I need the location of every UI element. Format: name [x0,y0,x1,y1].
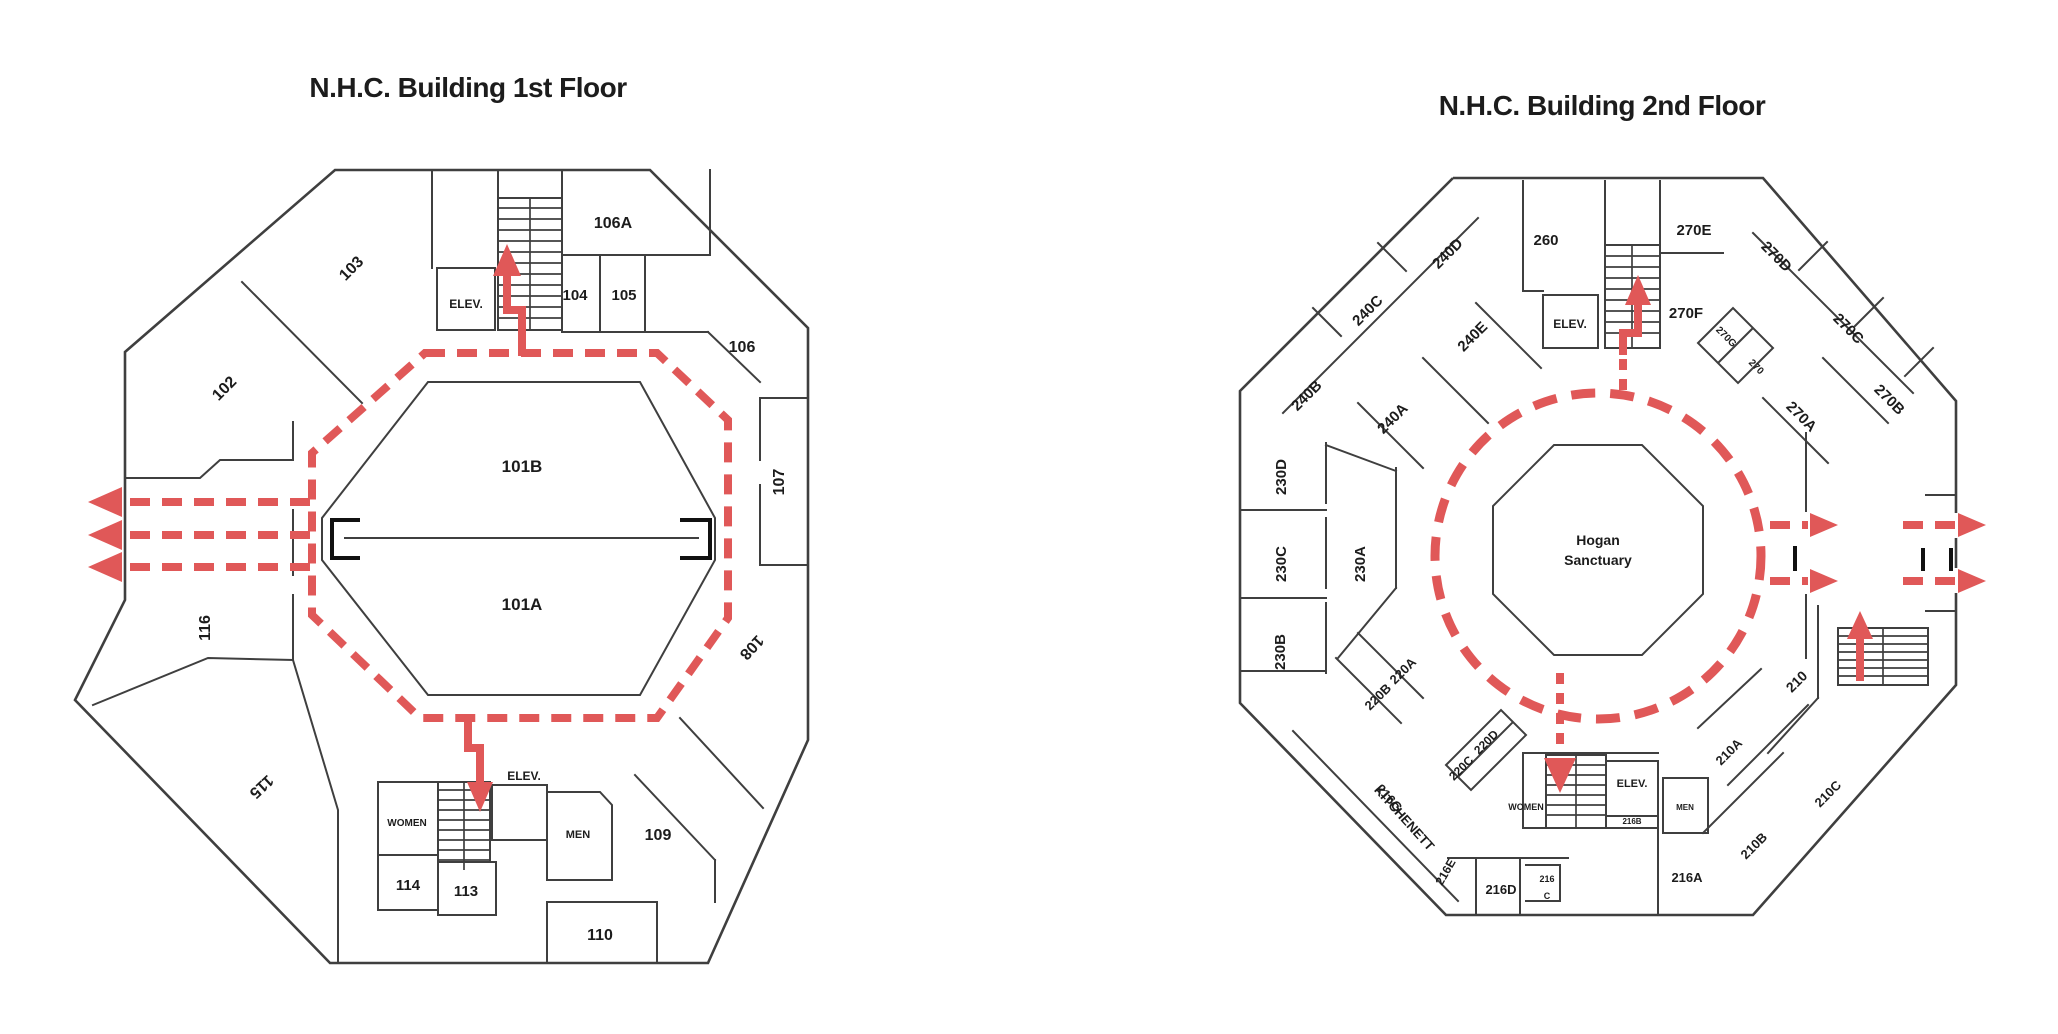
room-label-105: 105 [611,287,636,304]
room-label-216a: 216A [1671,870,1703,885]
evacuation-map-page: N.H.C. Building 1st Floor N.H.C. Buildin… [0,0,2058,1034]
room-label-110: 110 [587,927,613,944]
room-label-230b: 230B [1272,634,1289,670]
room-label-116: 116 [197,615,214,641]
evacuation-route-floor1 [88,244,728,812]
exit-arrow-right-3 [1958,513,1986,537]
floor1-plan: 101B 101A 103 102 116 115 106A ELEV. 104… [60,120,850,1000]
room-label-240e: 240E [1454,318,1491,355]
route-to-bottom-stairs [468,721,480,784]
elevator-label-bottom-2: ELEV. [1617,778,1648,790]
room-label-106: 106 [729,339,756,356]
building-outline [75,170,808,963]
room-label-114: 114 [396,877,421,894]
room-label-210c: 210C [1812,777,1845,810]
exit-arrow-left-1 [88,487,122,517]
room-label-270: 270 [1746,357,1766,377]
men-label: MEN [566,829,591,841]
room-label-210a: 210A [1713,735,1746,768]
room-label-103: 103 [336,253,367,284]
route-exit-lines-left [120,502,310,567]
room-label-220a: 220A [1387,654,1420,687]
room-label-270f: 270F [1669,305,1703,322]
room-label-106a: 106A [594,215,633,232]
room-label-220d: 220D [1471,727,1501,757]
room-label-102: 102 [209,373,240,404]
route-exit-outer [1903,525,1956,581]
room-label-216c-line1: 216 [1539,874,1554,884]
room-label-240b: 240B [1288,377,1325,414]
women-label-2: WOMEN [1508,802,1544,812]
room-label-216e: 216E [1432,856,1458,887]
room-label-260: 260 [1533,232,1558,249]
room-label-240d: 240D [1429,235,1466,272]
room-label-270a: 270A [1782,398,1819,435]
room-label-108: 108 [736,632,767,663]
room-label-220b: 220B [1362,681,1395,714]
exit-arrow-right-4 [1958,569,1986,593]
elevator-label-bottom: ELEV. [507,769,541,783]
room-label-109: 109 [645,827,672,844]
route-loop [312,353,728,718]
route-exit-inner [1770,525,1808,581]
room-label-113: 113 [454,883,478,900]
room-label-220c: 220C [1446,753,1476,783]
room-label-101a: 101A [502,595,543,614]
room-label-101b: 101B [502,457,543,476]
room-label-115: 115 [246,771,277,801]
room-label-230c: 230C [1273,546,1290,582]
kitchenett-label: KITCHENETT [1371,782,1437,853]
room-label-210: 210 [1783,667,1811,695]
room-label-216d: 216D [1485,882,1516,897]
up-arrow-right-stairs [1847,611,1873,639]
room-label-216b: 216B [1622,817,1641,826]
room-label-270b: 270B [1870,381,1907,418]
floor1-title: N.H.C. Building 1st Floor [218,72,718,104]
elevator-box-bottom [492,785,547,840]
room-label-216c-line2: C [1544,891,1551,901]
room-label-107: 107 [771,469,788,496]
room-label-230d: 230D [1273,459,1290,495]
door-markers-right-exit [1795,546,1951,571]
exit-arrow-left-3 [88,552,122,582]
floor1-outer-walls [75,170,808,963]
room-label-230a: 230A [1352,546,1369,582]
room-label-270e: 270E [1676,222,1711,239]
exit-arrow-right-2 [1810,569,1838,593]
room-label-210b: 210B [1738,830,1771,863]
floor2-labels: Hogan Sanctuary 260 ELEV. 270E 270F 270D… [1272,222,1908,901]
room-label-240c: 240C [1349,292,1386,329]
sanctuary-outline [1493,445,1703,655]
elevator-label-top-2: ELEV. [1553,317,1587,331]
up-arrow-top-stairs-2 [1625,275,1651,305]
room-label-240a: 240A [1374,400,1411,437]
men-label-2: MEN [1676,803,1694,812]
floor2-plan: Hogan Sanctuary 260 ELEV. 270E 270F 270D… [1208,113,2018,993]
elevator-label-top: ELEV. [449,297,483,311]
sanctuary-label-2: Sanctuary [1564,552,1632,568]
exit-arrow-left-2 [88,520,122,550]
room-label-104: 104 [562,287,588,304]
women-label: WOMEN [387,818,426,829]
exit-arrow-right-1 [1810,513,1838,537]
sanctuary-label-1: Hogan [1576,532,1620,548]
